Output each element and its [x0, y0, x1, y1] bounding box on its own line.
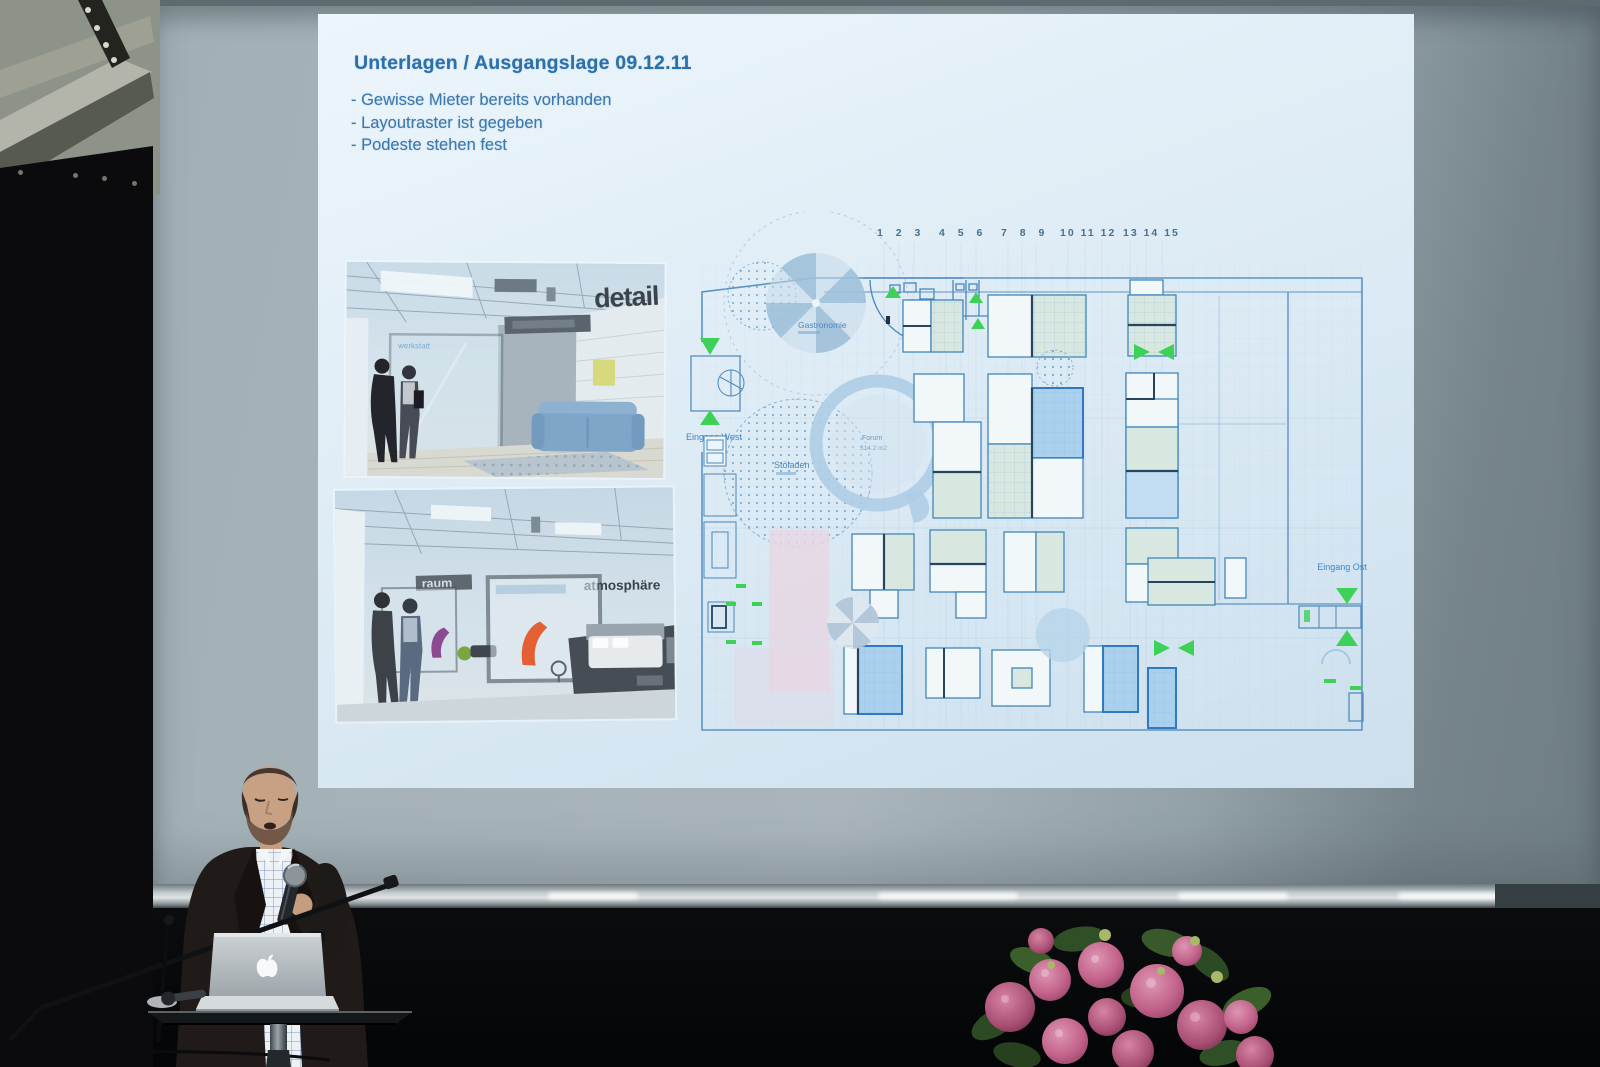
svg-text:7 8 9: 7 8 9: [1001, 227, 1049, 239]
grid-numbers: 1 2 3 4 5 6 7 8 9 10 11 12 13 14 15: [877, 227, 1180, 239]
interior-render-atmosphere: raum atmosphäre: [335, 487, 675, 722]
forum-label: Forum: [862, 435, 882, 442]
bullet-item: - Podeste stehen fest: [351, 134, 611, 157]
interior-render-detail: detail werkstatt: [345, 262, 664, 478]
bullet-item: - Layoutraster ist gegeben: [351, 112, 611, 135]
entrance-east-label: Eingang Ost: [1317, 562, 1367, 572]
stoffladen-label: Stöladen: [774, 460, 810, 470]
svg-text:10 11 12: 10 11 12: [1060, 227, 1116, 239]
render-caption-detail: detail: [593, 281, 659, 314]
bullet-item: - Gewisse Mieter bereits vorhanden: [351, 89, 611, 112]
glass-label: werkstatt: [397, 341, 431, 350]
svg-text:13 14 15: 13 14 15: [1123, 227, 1180, 239]
table-top: [148, 1012, 412, 1024]
wall: [1495, 884, 1600, 909]
wall-lamp: [593, 360, 615, 386]
floorplan-drawing: 1 2 3 4 5 6 7 8 9 10 11 12 13 14 15: [674, 212, 1374, 748]
conference-photo: Unterlagen / Ausgangslage 09.12.11 - Gew…: [0, 0, 1600, 1067]
flower-bouquet: [955, 905, 1275, 1067]
lectern-table: [140, 920, 420, 1067]
slide-title: Unterlagen / Ausgangslage 09.12.11: [354, 52, 692, 75]
svg-text:1 2 3: 1 2 3: [877, 227, 925, 239]
svg-text:4 5 6: 4 5 6: [939, 227, 987, 239]
blue-sofa: [531, 401, 644, 452]
gastronomie-label: Gastronomie: [798, 320, 847, 330]
slide-bullet-list: - Gewisse Mieter bereits vorhanden - Lay…: [351, 89, 611, 157]
macbook-laptop: [196, 933, 339, 1012]
forum-area-value: 314.2 m2: [860, 445, 887, 452]
presentation-slide: Unterlagen / Ausgangslage 09.12.11 - Gew…: [318, 14, 1414, 788]
